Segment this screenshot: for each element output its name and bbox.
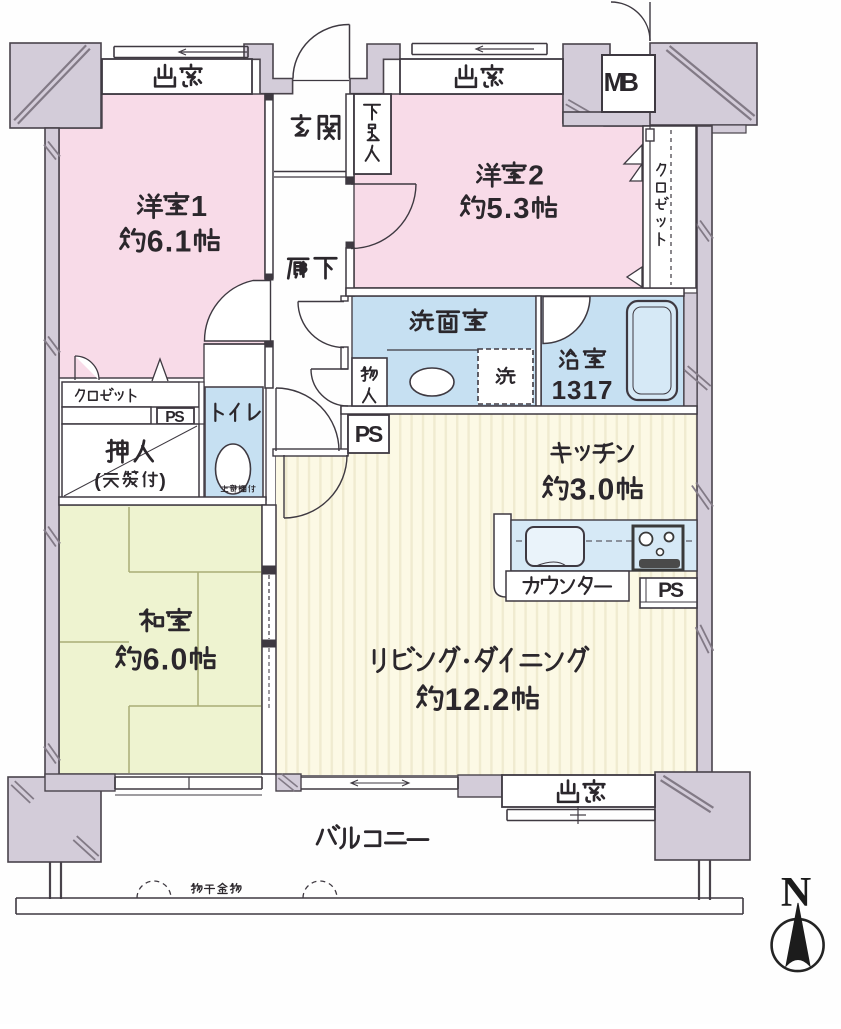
svg-text:1: 1 (191, 191, 207, 223)
svg-text:6: 6 (147, 225, 164, 258)
svg-text:(: ( (94, 470, 101, 492)
svg-text:N: N (781, 870, 811, 916)
svg-text:0: 0 (171, 643, 188, 676)
svg-text:2: 2 (492, 682, 509, 717)
svg-text:.: . (482, 682, 491, 717)
svg-text:.: . (165, 225, 173, 258)
svg-text:3: 3 (567, 375, 581, 405)
svg-text:S: S (368, 421, 383, 447)
svg-text:3: 3 (513, 193, 529, 225)
svg-text:7: 7 (598, 375, 612, 405)
svg-text:2: 2 (463, 682, 480, 717)
svg-text:.: . (588, 473, 596, 506)
svg-text:0: 0 (598, 473, 615, 506)
svg-text:5: 5 (487, 193, 503, 225)
svg-text:1: 1 (445, 682, 462, 717)
svg-text:B: B (620, 67, 639, 97)
svg-text:2: 2 (528, 160, 544, 191)
svg-text:): ) (159, 470, 166, 492)
svg-text:6: 6 (143, 643, 160, 676)
svg-text:.: . (161, 643, 169, 676)
svg-text:3: 3 (570, 473, 587, 506)
svg-text:1: 1 (552, 375, 566, 405)
svg-text:1: 1 (583, 375, 597, 405)
svg-text:.: . (504, 193, 512, 225)
svg-text:1: 1 (175, 225, 192, 258)
svg-text:S: S (670, 579, 684, 602)
